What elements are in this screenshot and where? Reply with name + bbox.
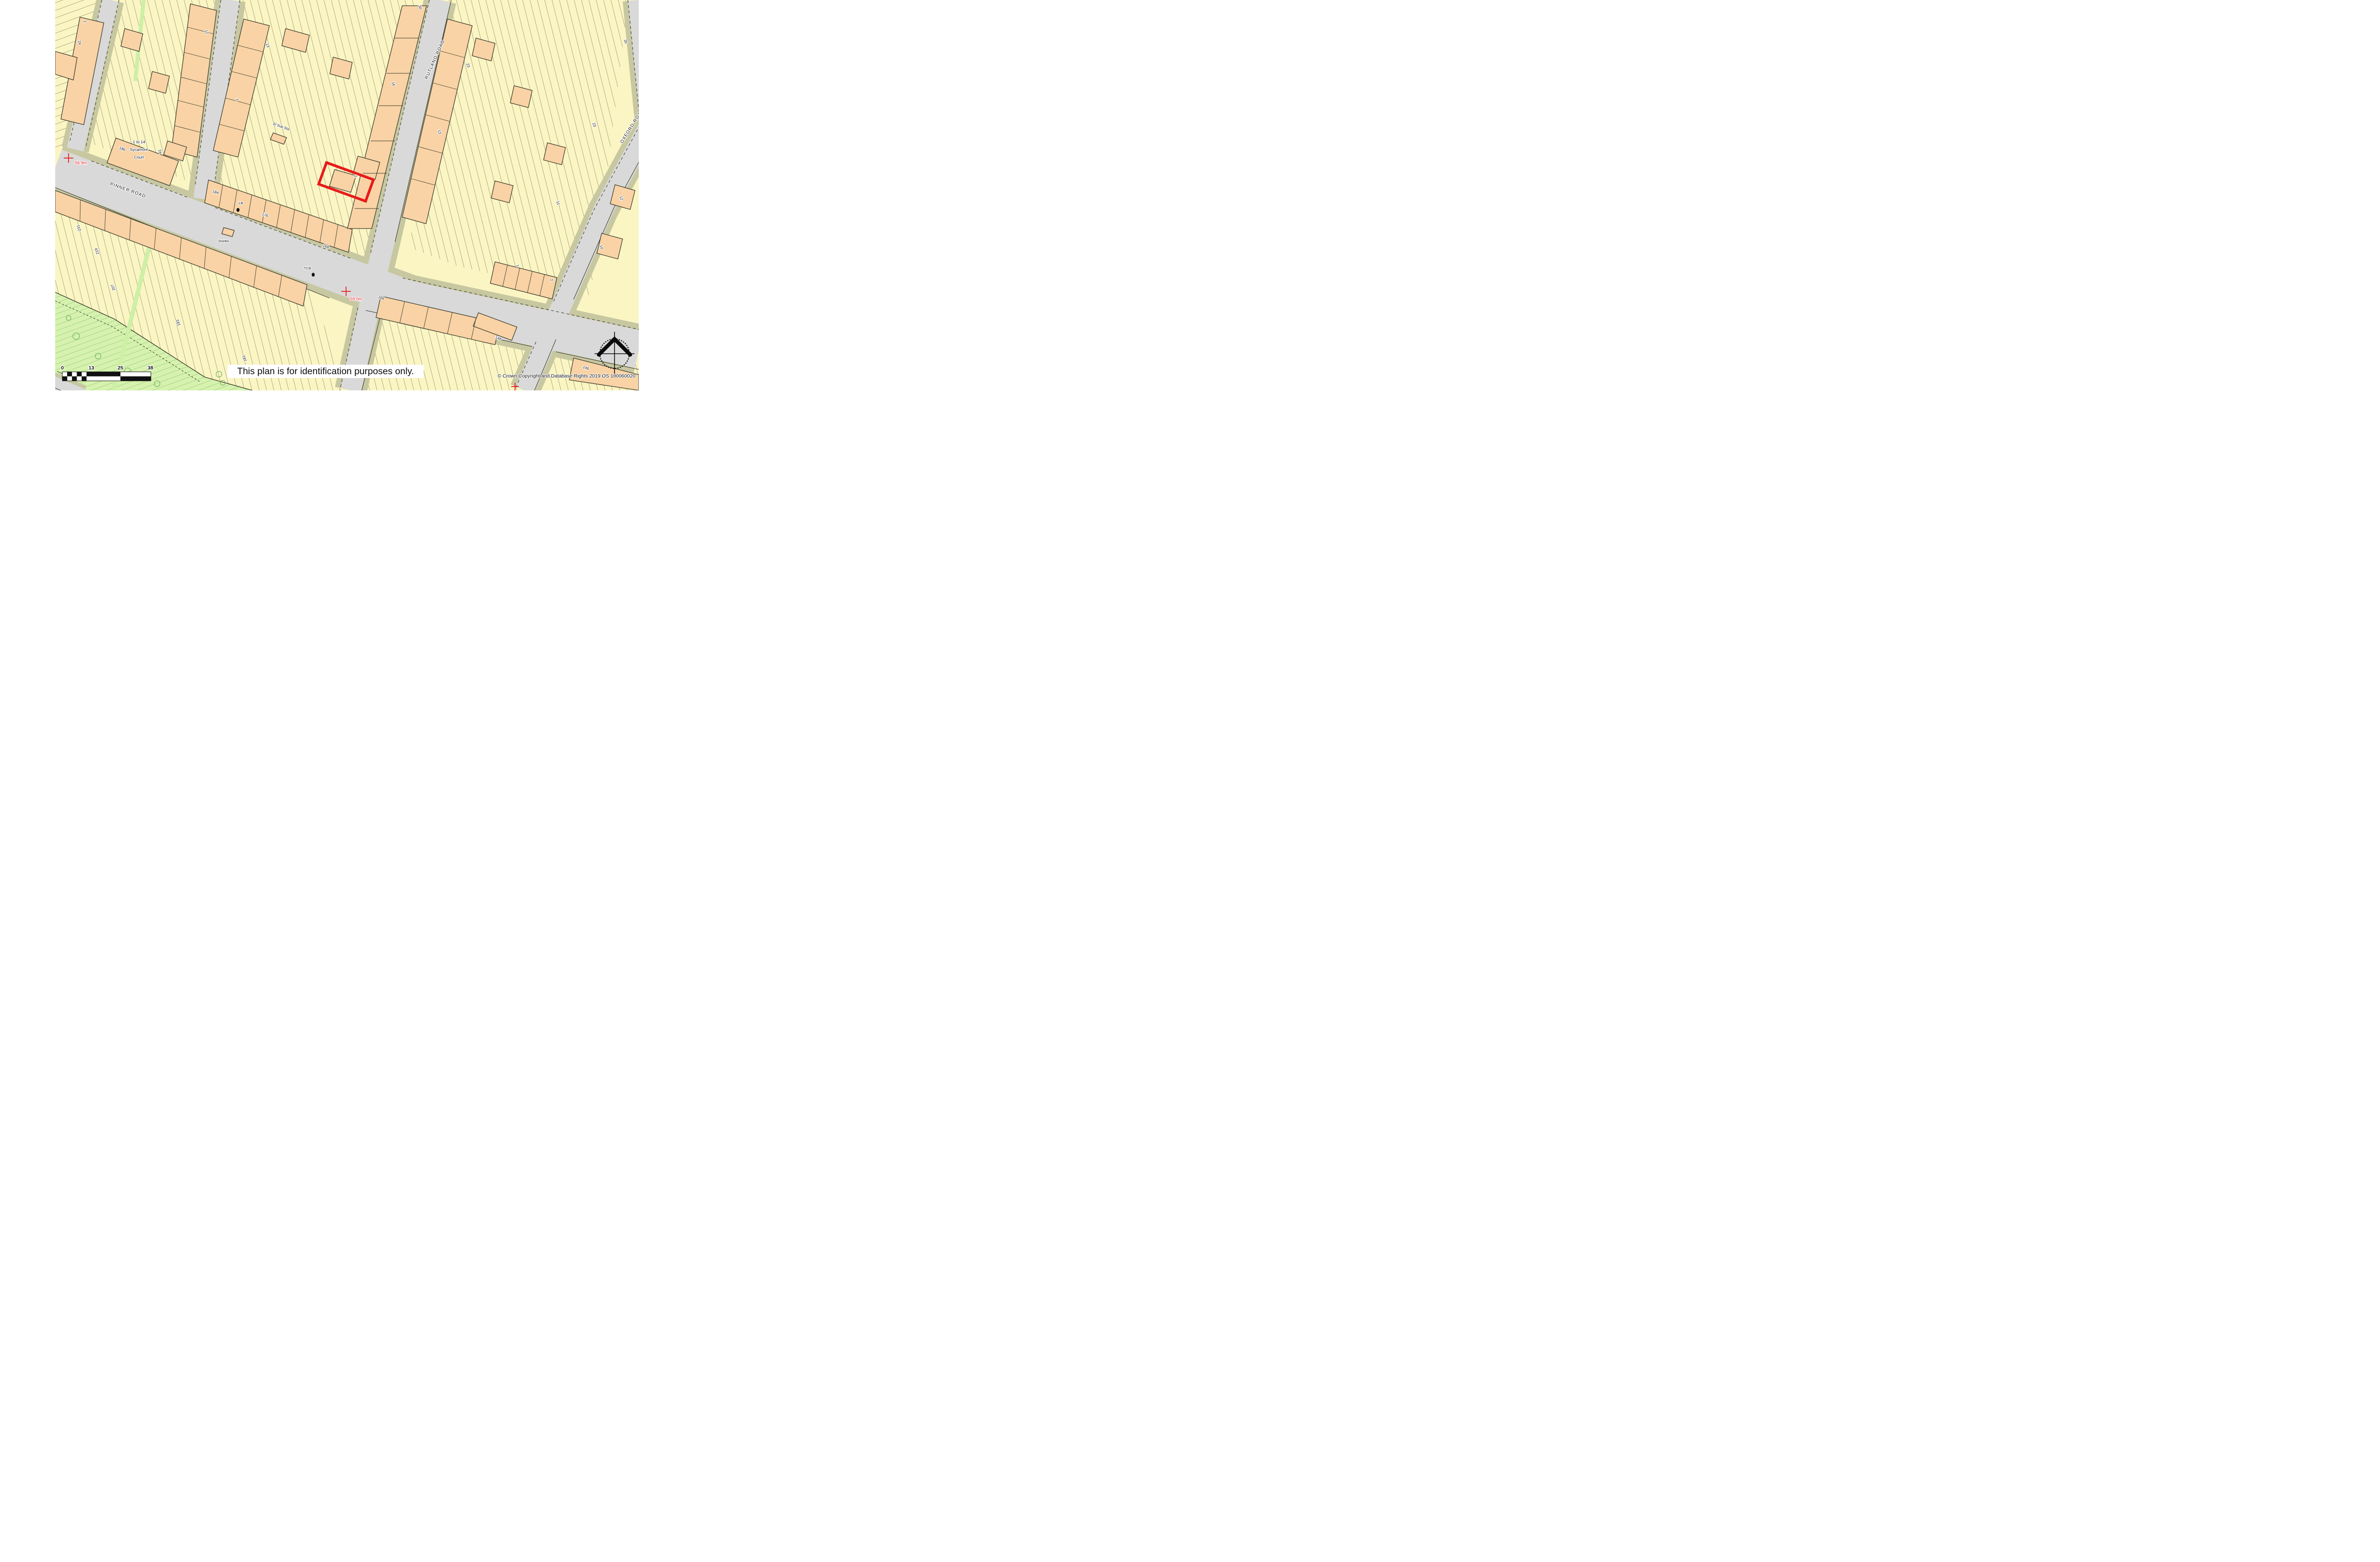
feature-label: TCB xyxy=(304,266,311,270)
map-plan: 0132538 PINNER ROADRUTLAND ROADOXFORD RO… xyxy=(0,0,691,390)
feature-label: Court xyxy=(134,155,144,159)
copyright: © Crown Copyright and Database Rights 20… xyxy=(447,373,635,379)
tcb-dot-icon xyxy=(312,273,315,277)
scale-tick-label: 13 xyxy=(89,365,94,371)
feature-label: Shelter xyxy=(218,239,229,243)
lb-dot-icon xyxy=(237,208,239,212)
scale-tick-label: 25 xyxy=(118,365,123,371)
feature-label: 1 to 14 xyxy=(133,139,145,144)
scale-tick-label: 0 xyxy=(61,365,64,371)
spot-height-label: 56.9m xyxy=(75,160,87,165)
disclaimer: This plan is for identification purposes… xyxy=(228,365,424,378)
map-canvas: 0132538 PINNER ROADRUTLAND ROADOXFORD RO… xyxy=(0,0,691,390)
scale-tick-label: 38 xyxy=(148,365,153,371)
feature-label: Sycamore xyxy=(130,147,149,152)
feature-label: LB xyxy=(238,201,243,205)
spot-height-label: 59.0m xyxy=(350,297,362,301)
